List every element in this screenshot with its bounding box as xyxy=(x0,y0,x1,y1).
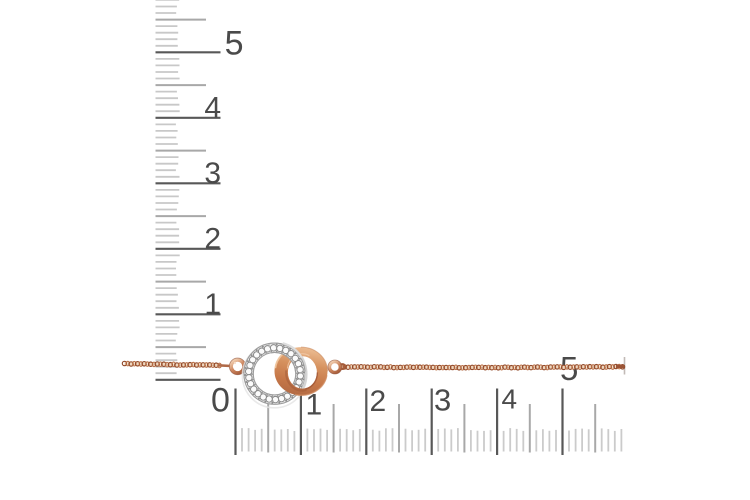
svg-text:2: 2 xyxy=(204,222,221,255)
svg-text:1: 1 xyxy=(204,288,221,321)
svg-text:0: 0 xyxy=(211,382,230,420)
svg-text:2: 2 xyxy=(370,385,387,418)
svg-text:4: 4 xyxy=(204,91,221,124)
svg-text:3: 3 xyxy=(434,383,451,418)
svg-text:5: 5 xyxy=(225,25,244,63)
svg-text:3: 3 xyxy=(204,157,221,190)
svg-text:4: 4 xyxy=(502,384,518,415)
